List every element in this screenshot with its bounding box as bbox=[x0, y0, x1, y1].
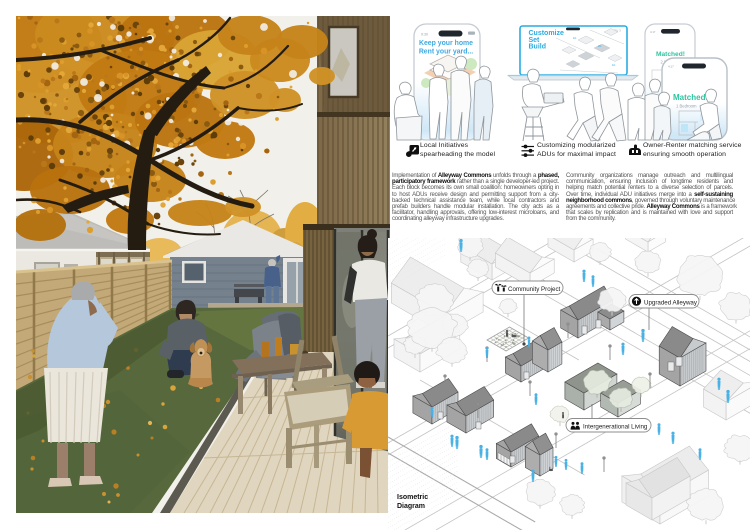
svg-text:Matched!: Matched! bbox=[656, 51, 685, 58]
svg-text:1b: 1b bbox=[573, 36, 577, 40]
svg-text:Upgraded Alleyway: Upgraded Alleyway bbox=[644, 299, 698, 306]
svg-text:4:17: 4:17 bbox=[650, 30, 656, 34]
svg-text:Matched!: Matched! bbox=[673, 93, 708, 102]
svg-text:Build: Build bbox=[529, 44, 547, 51]
svg-text:4:17: 4:17 bbox=[668, 65, 674, 69]
svg-text:Community Project: Community Project bbox=[508, 286, 561, 293]
svg-text:2b: 2b bbox=[598, 44, 602, 48]
svg-text:Intergenerational Living: Intergenerational Living bbox=[583, 423, 648, 430]
svg-text:Keep your home: Keep your home bbox=[419, 40, 473, 47]
svg-text:1 Bedroom: 1 Bedroom bbox=[676, 104, 697, 109]
svg-text:1b: 1b bbox=[612, 63, 616, 67]
svg-text:Rent your yard...: Rent your yard... bbox=[419, 49, 473, 56]
svg-text:9:30: 9:30 bbox=[421, 33, 428, 37]
